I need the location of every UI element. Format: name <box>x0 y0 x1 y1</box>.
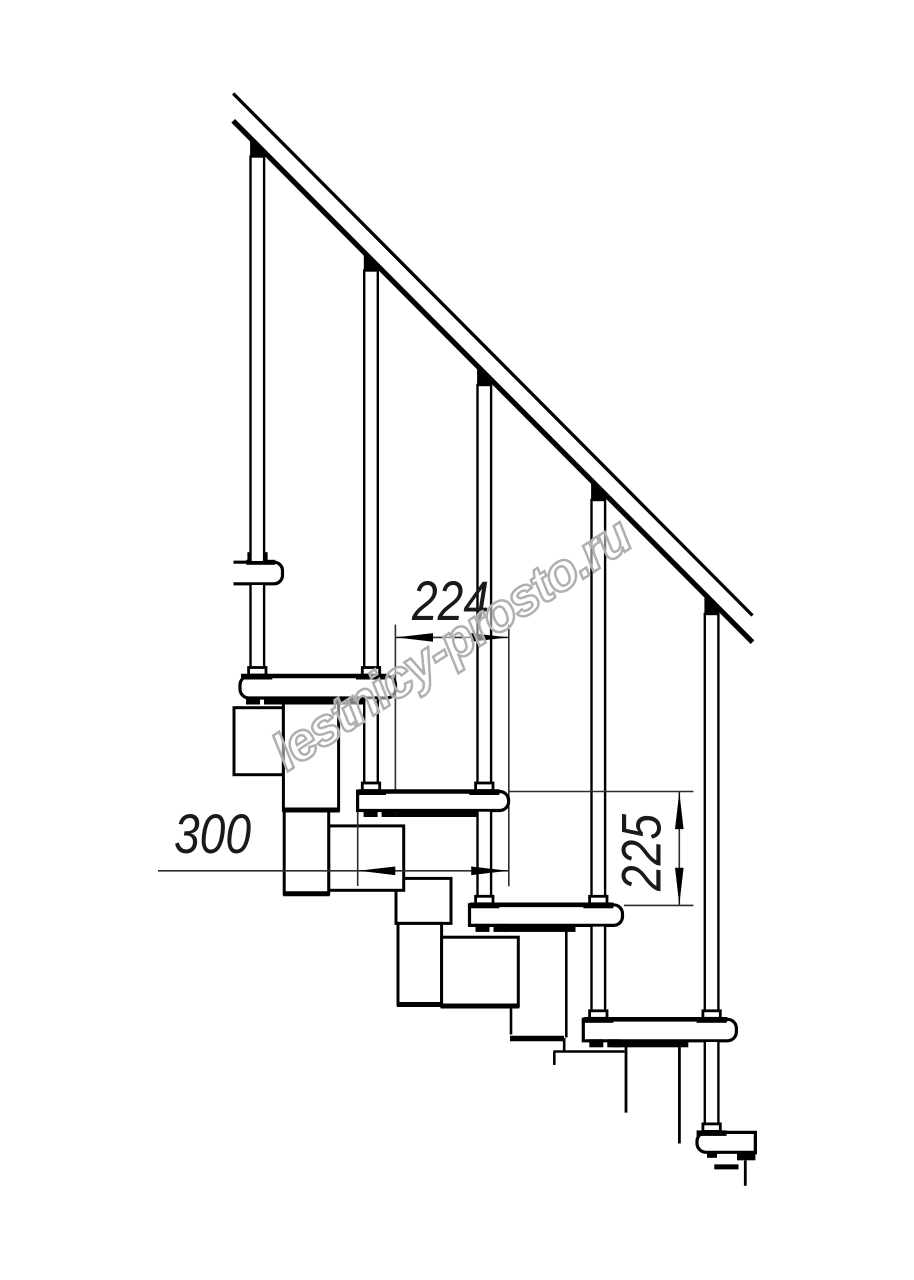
svg-text:300: 300 <box>174 802 251 865</box>
svg-text:225: 225 <box>610 813 673 892</box>
